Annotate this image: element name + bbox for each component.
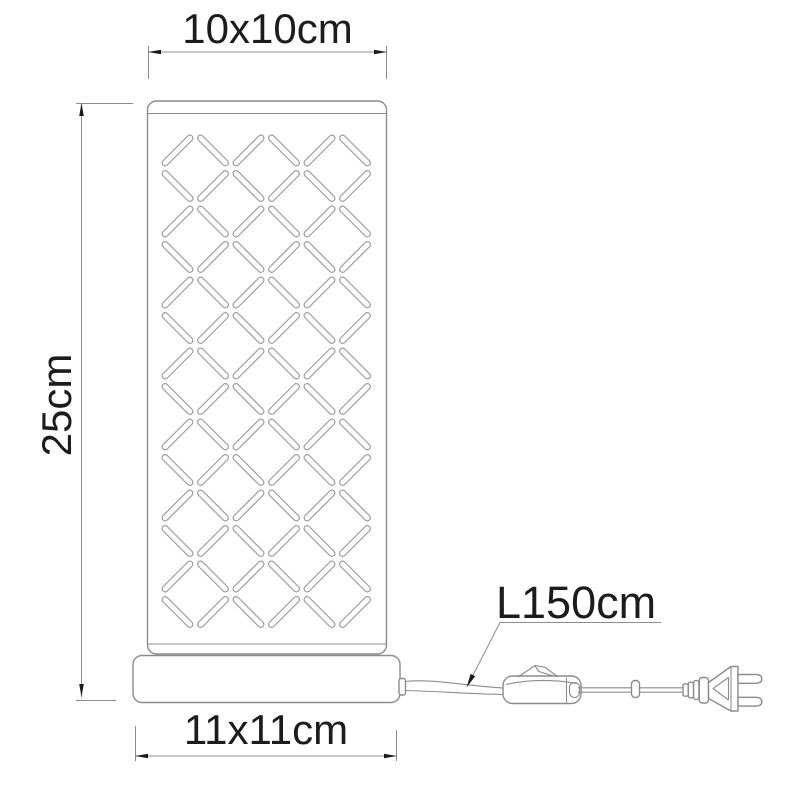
- strain-relief-ridge: [688, 682, 693, 698]
- leader-line: [470, 623, 500, 682]
- cord-segment: [405, 691, 503, 695]
- arrow-tick: [79, 684, 84, 697]
- label-cable-length: L150cm: [496, 580, 656, 625]
- strain-relief-ridge: [683, 684, 688, 696]
- label-lamp-height: 25cm: [36, 354, 78, 457]
- cord-stopper: [632, 681, 640, 698]
- lamp-line-art: [0, 0, 800, 800]
- dimension-diagram: 10x10cm 25cm 11x11cm L150cm: [0, 0, 800, 800]
- cord-exit-nub: [399, 679, 406, 696]
- arrow-tick: [79, 103, 84, 116]
- power-plug: [683, 667, 762, 712]
- arrow-tick: [374, 50, 387, 55]
- power-cord: [399, 679, 503, 696]
- lamp-shade: [148, 101, 387, 654]
- strain-relief-ridge: [694, 681, 699, 700]
- arrow-tick: [148, 50, 161, 55]
- label-base-size: 11x11cm: [135, 709, 397, 751]
- plug-collar: [699, 678, 708, 704]
- dimension-height-left: [76, 103, 133, 701]
- power-cord-2: [578, 681, 684, 698]
- arrow-tick: [384, 754, 397, 759]
- arrow-tick: [135, 754, 148, 759]
- plug-pin-top: [738, 675, 762, 684]
- label-shade-size: 10x10cm: [148, 8, 387, 50]
- inline-switch: [503, 666, 581, 704]
- cord-segment: [405, 681, 503, 688]
- plug-pin-bottom: [738, 697, 762, 706]
- lamp-base: [133, 656, 400, 703]
